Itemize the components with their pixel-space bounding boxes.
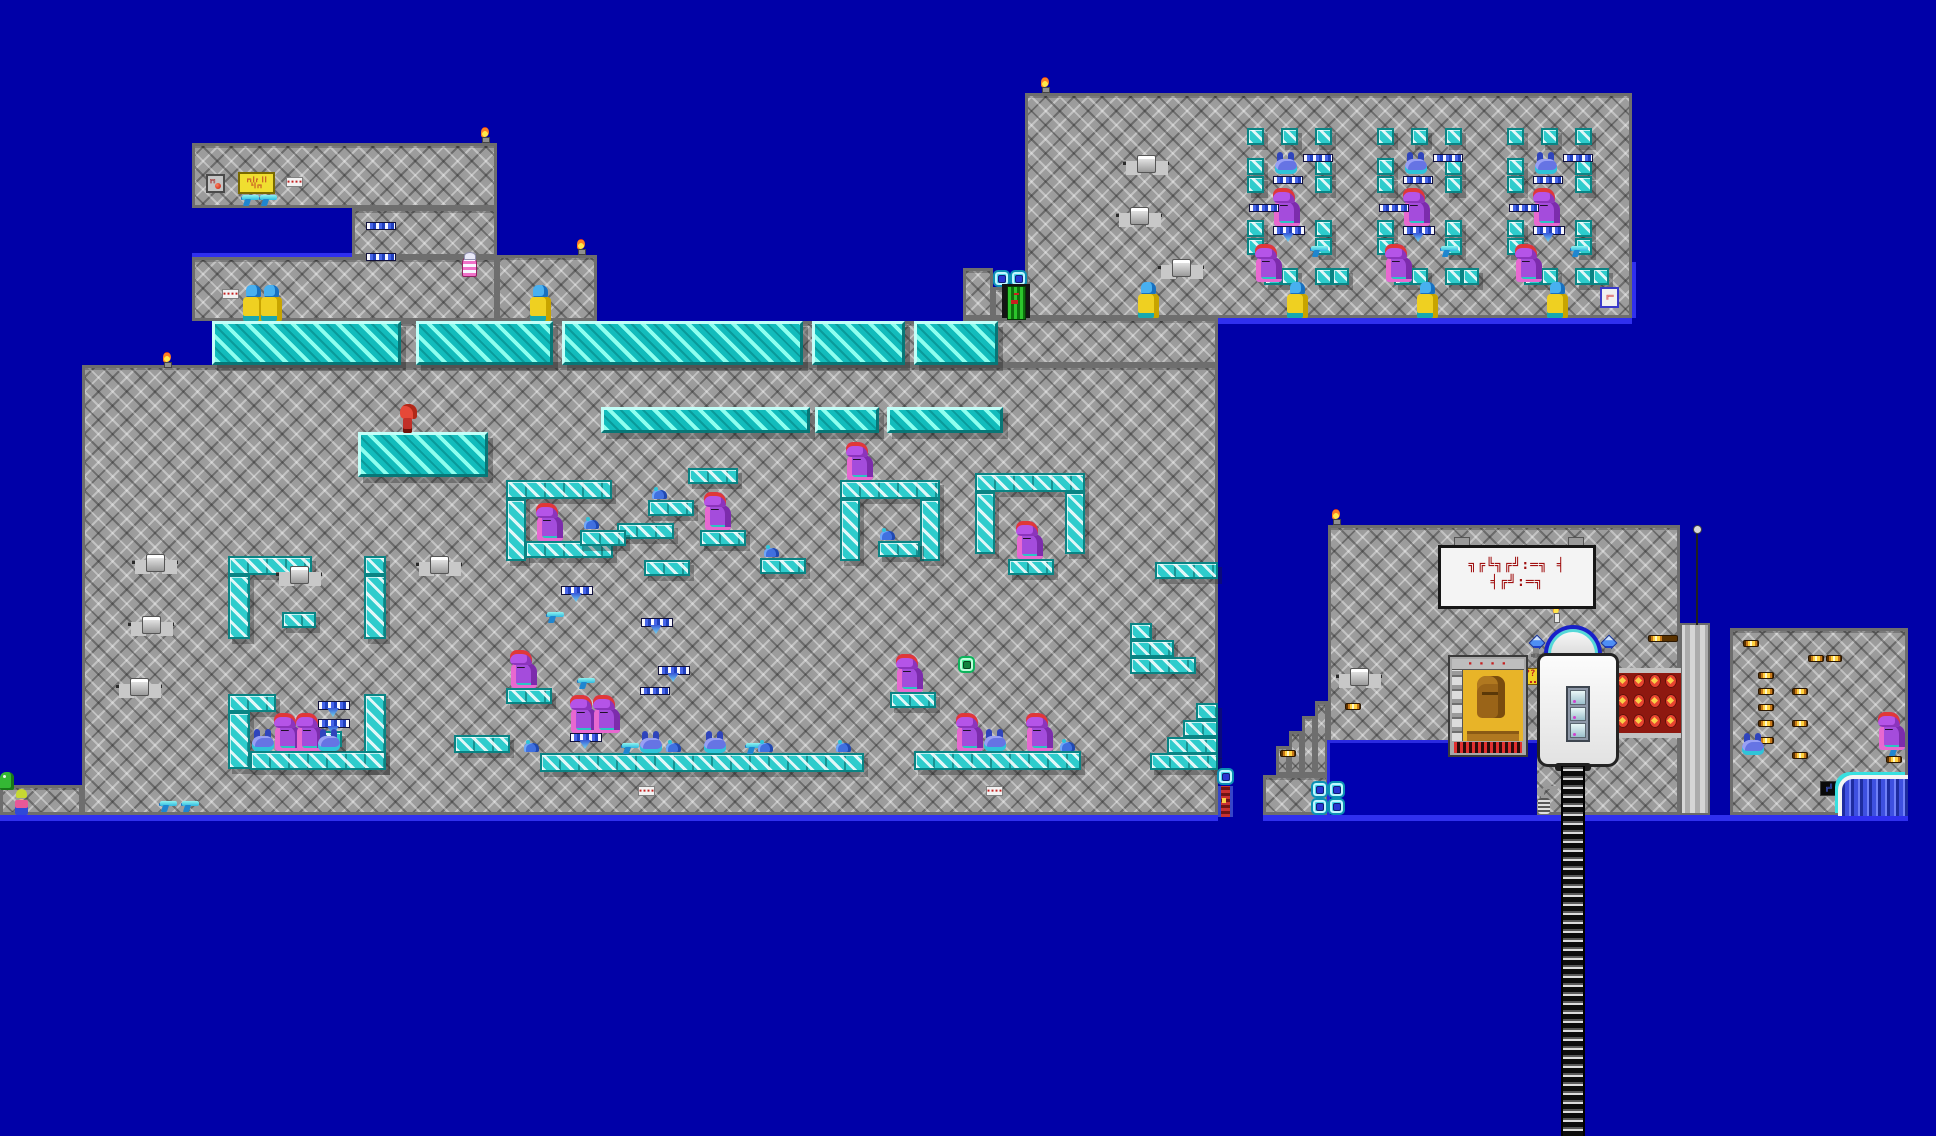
round-alien[interactable] [984,729,1006,751]
round-alien[interactable] [1405,152,1427,174]
gold-bar-item[interactable] [1808,655,1824,662]
glass-block-platform [1445,220,1462,237]
gold-bar-item[interactable] [1758,688,1774,695]
glass-block-platform [228,712,250,769]
small-critter[interactable] [836,743,851,752]
stunner-pickup[interactable] [620,741,640,754]
red-button [1633,714,1645,728]
glass-block-platform [1155,562,1218,579]
torch-flame [576,239,586,254]
glass-block-platform [1332,268,1349,285]
claw-platform[interactable] [561,586,591,602]
floor-highlight [1218,318,1632,324]
glass-block-platform [1315,268,1332,285]
round-alien[interactable] [640,731,662,753]
gem-socket[interactable] [1311,798,1328,815]
striped-bar [640,687,670,695]
red-button [1665,714,1677,728]
floor-highlight [0,815,82,821]
dog-alien[interactable] [896,654,923,692]
red-button-wall [1615,668,1681,738]
glass-block-platform [644,560,690,576]
dog-alien[interactable] [1016,521,1043,559]
glass-block-platform [890,692,936,708]
glass-block-platform [920,499,940,561]
glass-block-platform [228,694,276,712]
sign-security: ╔╗ [206,174,225,193]
striped-bar [1563,154,1593,162]
striped-bar [1273,176,1303,184]
sphinx-picture [1463,670,1523,741]
sign-dots-text: ▪▪▪▪ [987,787,1002,795]
machine-cell [1570,723,1586,738]
glass-block-platform [1541,128,1558,145]
sphinx-monitor: ▪ ▪ ▪ ▪ [1448,655,1528,757]
glass-block-platform [1150,753,1218,770]
gem-socket[interactable] [1311,781,1328,798]
machine-cell [1570,690,1586,705]
dog-alien[interactable] [956,713,983,751]
red-alien[interactable] [400,404,417,433]
terrain-block [1302,716,1315,775]
small-critter[interactable] [652,490,667,499]
door-green[interactable] [1002,284,1030,318]
glass-block-platform [1130,623,1152,640]
worker-alien[interactable] [1547,282,1568,318]
round-alien[interactable] [318,729,340,751]
dog-alien[interactable] [1026,713,1053,751]
glass-block-platform [1575,128,1592,145]
gold-bar-item[interactable] [1743,640,1759,647]
wall-switch[interactable] [1158,259,1204,275]
glass-block-platform [1575,268,1592,285]
alien-billboard-line1: ╗╔╚╗╔╝:═╗ ╡ [1441,557,1593,574]
dog-alien[interactable] [593,695,620,733]
elevator-platform[interactable] [366,222,396,230]
glass-block-platform [1183,720,1218,737]
stunner-pickup[interactable] [240,193,260,206]
stunner-pickup[interactable] [180,799,200,812]
gold-bar-item[interactable] [1280,750,1296,757]
gold-bar-item[interactable] [1345,703,1361,710]
terrain-block [963,268,993,318]
white-machine [1537,653,1619,767]
glass-block-platform [1377,158,1394,175]
striped-platform [887,407,1003,433]
machine-cell [1570,707,1586,722]
dog-alien[interactable] [1515,244,1542,282]
glass-block-platform [454,735,510,753]
rocket-critter[interactable] [462,256,477,277]
alien-billboard-line2: ╡╔╝:═╗ [1441,574,1593,591]
striped-platform [562,321,803,365]
sign-dots: ▪▪▪▪ [286,177,303,187]
glass-block-platform [282,612,316,628]
stunner-pickup[interactable] [1309,244,1329,257]
torch-flame [1331,509,1341,524]
striped-platform [812,321,905,365]
gold-bar-item[interactable] [1886,756,1902,763]
door-red[interactable] [1218,786,1233,817]
claw-platform[interactable] [641,618,671,634]
red-button [1633,674,1645,688]
glass-block-platform [1445,268,1462,285]
striped-platform [601,407,810,433]
stunner-pickup[interactable] [545,610,565,623]
round-alien[interactable] [704,731,726,753]
gem-socket[interactable] [1328,798,1345,815]
gem-socket-green[interactable] [958,656,975,673]
gold-bar-item[interactable] [1826,655,1842,662]
gem-socket[interactable] [1217,768,1234,785]
sign-dots-text: ▪▪▪▪ [639,787,654,795]
claw-platform[interactable] [1403,226,1433,242]
alien-billboard-board: ╗╔╚╗╔╝:═╗ ╡ ╡╔╝:═╗ [1438,545,1596,609]
striped-platform [815,407,879,433]
wall-switch[interactable] [416,556,462,572]
glass-block-platform [1315,176,1332,193]
small-critter[interactable] [1060,742,1075,751]
exit-door[interactable] [1838,775,1908,816]
glass-block-platform [700,530,746,546]
floor-highlight [192,253,352,257]
red-button [1665,674,1677,688]
gold-bar-item[interactable] [1758,672,1774,679]
glass-block-platform [228,575,250,639]
dog-alien[interactable] [536,503,563,541]
level-map: ╔╗╔╗║╔ ║║ ╚║╔╗▪▪▪▪▪▪▪▪▪▪▪▪▪▪▪▪╔═??╔╝ ╗╔╚… [0,0,1936,1136]
wall-switch[interactable] [116,678,162,694]
glass-block-platform [540,753,864,772]
striped-bar [1533,176,1563,184]
bellows-hose [1561,766,1585,1136]
glass-block-platform [840,480,940,499]
machine-window [1566,686,1590,742]
glass-block-platform [1445,128,1462,145]
gem-socket[interactable] [1328,781,1345,798]
striped-bar [1509,204,1539,212]
gold-bar-item[interactable] [1648,635,1678,642]
glass-block-platform [648,500,694,516]
support-column [1680,623,1710,815]
terrain-block [963,318,1218,365]
wall-switch[interactable] [1123,155,1169,171]
claw-platform[interactable] [1533,226,1563,242]
glass-block-platform [1377,176,1394,193]
sign-black-text: ╔╝ [1821,782,1837,795]
alien-billboard: ╗╔╚╗╔╝:═╗ ╡ ╡╔╝:═╗ [1438,537,1600,623]
glass-block-platform [1575,220,1592,237]
glass-block-platform [1247,176,1264,193]
glass-block-platform [1377,128,1394,145]
glass-block-platform [1575,176,1592,193]
glass-block-platform [506,499,526,561]
sign-dots: ▪▪▪▪ [986,786,1003,796]
floor-highlight [1632,262,1636,318]
worker-alien[interactable] [1287,282,1308,318]
round-alien[interactable] [1535,152,1557,174]
sphinx-head [1477,676,1505,718]
gold-bar-item[interactable] [1792,720,1808,727]
glass-block-platform [250,751,386,770]
glass-block-platform [760,558,806,574]
glass-block-platform [1592,268,1609,285]
plaque-text: ╔═ [1602,289,1617,304]
pipe-coil [1541,786,1559,816]
glass-block-platform [840,499,860,561]
keen-player[interactable] [14,789,29,815]
stunner-pickup[interactable] [1439,244,1459,257]
small-critter[interactable] [584,520,599,529]
red-button [1633,694,1645,708]
striped-bar [1433,154,1463,162]
sign-black: ╔╝ [1820,781,1838,796]
wall-switch[interactable] [1336,668,1382,684]
worker-alien[interactable] [530,285,551,321]
glass-block-platform [1130,657,1196,674]
small-critter[interactable] [758,743,773,752]
dog-alien[interactable] [846,442,873,480]
monitor-rail [1452,670,1463,741]
striped-platform [416,321,553,365]
dog-alien[interactable] [1385,244,1412,282]
glass-block-platform [1196,703,1218,720]
striped-bar [1249,204,1279,212]
striped-bar [1303,154,1333,162]
sign-security-text: ╔╗ [209,177,222,184]
glass-block-platform [1008,559,1054,575]
plaque: ╔═ [1600,287,1619,308]
claw-platform[interactable] [1273,226,1303,242]
glass-block-platform [1377,220,1394,237]
gold-bar-item[interactable] [1758,704,1774,711]
sign-dots-text: ▪▪▪▪ [223,290,238,298]
glass-block-platform [364,556,386,575]
glass-block-platform [914,751,1081,770]
elevator-platform[interactable] [366,253,396,261]
wall-switch[interactable] [1116,207,1162,223]
glass-block-platform [1247,158,1264,175]
striped-platform [212,321,401,365]
worker-alien[interactable] [1417,282,1438,318]
glass-block-platform [1065,492,1085,554]
sign-yellow: ╔╗║╔ ║║ ╚║╔╗ [238,172,275,194]
claw-platform[interactable] [570,733,600,749]
glass-block-platform [1315,128,1332,145]
small-critter[interactable] [524,743,539,752]
red-button [1649,714,1661,728]
striped-platform [358,432,488,477]
glass-block-platform [1507,176,1524,193]
glass-block-platform [580,530,626,546]
sign-dots: ▪▪▪▪ [638,786,655,796]
worker-alien[interactable] [1138,282,1159,318]
glass-block-platform [506,480,612,499]
gold-bar-item[interactable] [1792,688,1808,695]
small-critter[interactable] [666,743,681,752]
glass-block-platform [878,541,920,557]
floor-highlight [82,815,1218,821]
antenna [1693,525,1701,625]
glass-block-platform [1462,268,1479,285]
monitor-top-dashes: ▪ ▪ ▪ ▪ [1452,659,1524,670]
glass-block-platform [688,468,738,484]
red-button [1665,694,1677,708]
small-critter[interactable] [880,531,895,540]
sign-dots-text: ▪▪▪▪ [287,178,302,186]
stunner-pickup[interactable] [576,676,596,689]
dog-alien[interactable] [510,650,537,688]
wall-switch[interactable] [276,566,322,582]
stunner-pickup[interactable] [158,799,178,812]
glass-block-platform [364,575,386,639]
striped-bar [1403,176,1433,184]
glass-block-platform [1247,220,1264,237]
monitor-bottom-strip [1454,742,1522,753]
striped-bar [1379,204,1409,212]
dog-alien[interactable] [1878,712,1905,750]
glass-block-platform [1411,128,1428,145]
sign-yellow-text: ╔╗║╔ ║║ ╚║╔╗ [240,177,273,189]
glass-block-platform [1507,128,1524,145]
gold-bar-item[interactable] [1758,720,1774,727]
glass-block-platform [1445,176,1462,193]
stunner-pickup[interactable] [1569,244,1589,257]
glass-block-platform [1247,128,1264,145]
glass-block-platform [506,688,552,704]
torch-flame [1040,77,1050,92]
wall-switch[interactable] [128,616,174,632]
worker-alien[interactable] [261,285,282,321]
glass-block-platform [1167,737,1218,754]
green-critter[interactable] [0,772,14,790]
glass-block-platform [1507,158,1524,175]
glass-block-platform [975,492,995,554]
glass-block-platform [1281,128,1298,145]
floor-highlight [1263,815,1908,821]
red-button [1649,694,1661,708]
glass-block-platform [1507,220,1524,237]
striped-platform [914,321,998,365]
glass-block-platform [975,473,1085,492]
dog-alien[interactable] [704,492,731,530]
stunner-pickup[interactable] [258,193,278,206]
sphinx-base [1467,731,1519,741]
round-alien[interactable] [252,729,274,751]
torch-flame [162,352,172,367]
gold-bar-item[interactable] [1792,752,1808,759]
torch-flame [480,127,490,142]
glass-block-platform [1315,220,1332,237]
dog-alien[interactable] [1255,244,1282,282]
terrain-block [352,208,497,257]
claw-platform[interactable] [658,666,688,682]
round-alien[interactable] [1742,733,1764,755]
round-alien[interactable] [1275,152,1297,174]
glass-block-platform [1130,640,1174,657]
red-button [1649,674,1661,688]
small-critter[interactable] [764,548,779,557]
wall-switch[interactable] [132,554,178,570]
sign-dots: ▪▪▪▪ [222,289,239,299]
